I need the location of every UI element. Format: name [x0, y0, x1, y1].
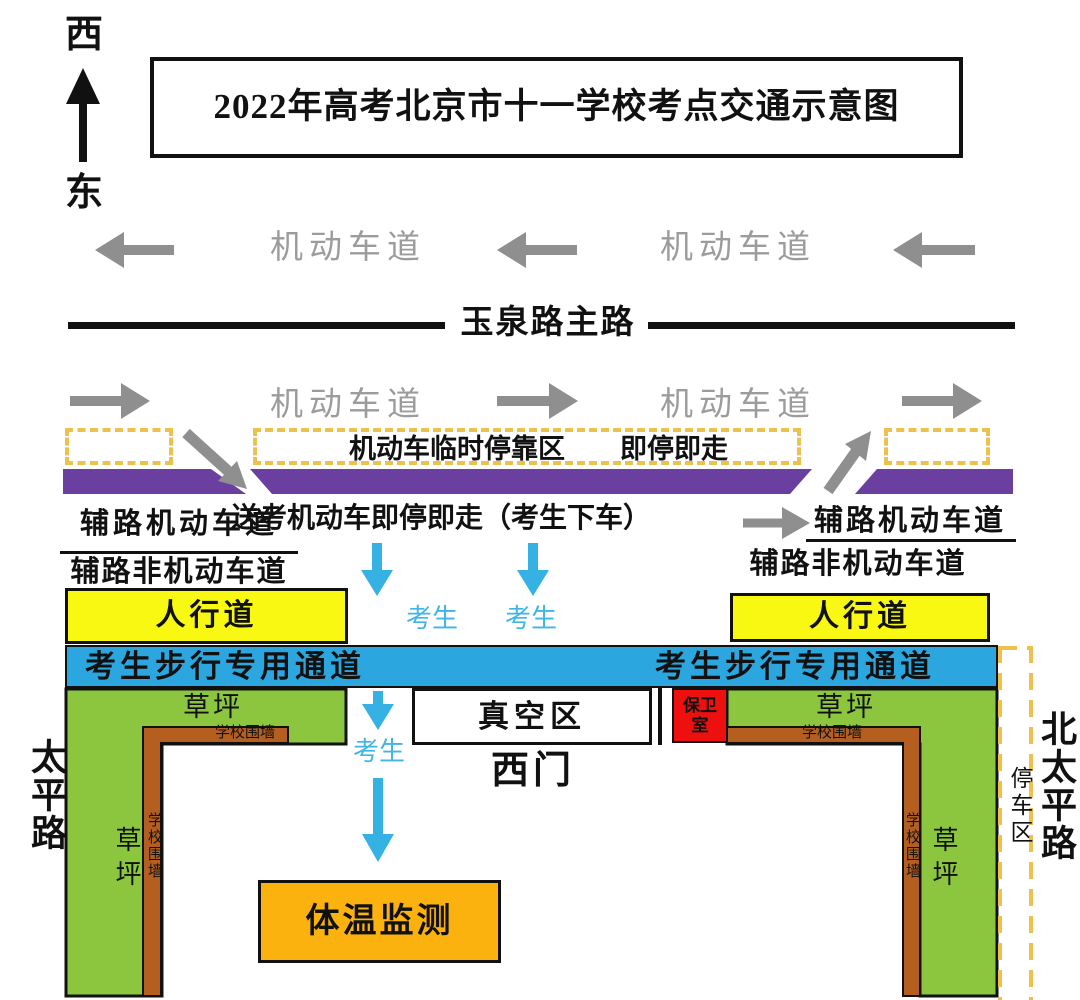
- service-motor-lane-right: 辅路机动车道: [804, 505, 1016, 538]
- eastbound-arrow-1: [70, 383, 150, 419]
- compass-west-label: 西: [56, 14, 112, 58]
- gate-divider-line: [658, 688, 662, 745]
- title-box: 2022年高考北京市十一学校考点交通示意图: [150, 57, 963, 158]
- service-road-divider-right: [806, 539, 1016, 542]
- student-arrow-4: [362, 778, 394, 862]
- westbound-arrow-1: [95, 232, 174, 268]
- vacuum-zone-label: 真空区: [478, 699, 586, 735]
- student-arrow-2: [517, 543, 549, 596]
- temp-stop-zone-middle: 机动车临时停靠区 即停即走: [253, 428, 801, 465]
- guard-room-box: 保卫 室: [672, 688, 728, 743]
- sidewalk-left-label: 人行道: [156, 599, 258, 634]
- sidewalk-right: 人行道: [730, 593, 990, 642]
- student-label-1: 考生: [400, 604, 464, 634]
- corridor-label-left: 考生步行专用通道: [85, 649, 365, 685]
- lawn-left-top-label: 草坪: [175, 692, 251, 723]
- stop-and-go-label: 即停即走: [620, 434, 728, 465]
- westbound-arrow-2: [497, 232, 577, 268]
- traffic-diagram: 西 东 2022年高考北京市十一学校考点交通示意图 机动车道 机动车道 玉泉路主…: [0, 0, 1080, 1000]
- service-road-bar-middle: [250, 469, 812, 494]
- compass-north-arrow: [66, 68, 100, 162]
- service-motor-lane-left: 辅路机动车道: [60, 508, 298, 541]
- wall-right-column-label: 学校围墙: [902, 812, 923, 880]
- service-road-arrow: [743, 507, 810, 539]
- wall-left-column-label: 学校围墙: [144, 812, 165, 880]
- main-road-line-left: [68, 322, 445, 329]
- sidewalk-left: 人行道: [65, 588, 348, 644]
- temp-stop-zone-left: [65, 428, 173, 465]
- street-left-label: 太平路: [20, 738, 72, 852]
- eastbound-arrow-2: [497, 383, 578, 419]
- guard-room-label-line1: 保卫: [683, 696, 717, 716]
- sidewalk-right-label: 人行道: [809, 600, 911, 635]
- temp-stop-label: 机动车临时停靠区: [349, 434, 565, 465]
- west-gate-label: 西门: [478, 750, 588, 794]
- eastbound-arrow-3: [902, 383, 982, 419]
- student-arrow-3: [362, 691, 394, 730]
- wall-right-top-label: 学校围墙: [786, 725, 878, 742]
- westbound-lane-label-1: 机动车道: [258, 230, 438, 268]
- eastbound-lane-label-1: 机动车道: [258, 387, 438, 425]
- compass-east-label: 东: [56, 172, 112, 216]
- school-wall-right-shape: [727, 727, 920, 996]
- guard-room-label-line2: 室: [692, 716, 709, 736]
- service-nonmotor-lane-right: 辅路非机动车道: [740, 548, 976, 581]
- student-corridor-bar: 考生步行专用通道 考生步行专用通道: [65, 645, 998, 688]
- student-label-2: 考生: [499, 604, 563, 634]
- corridor-label-right: 考生步行专用通道: [655, 649, 935, 685]
- service-road-divider-left: [60, 551, 298, 554]
- westbound-lane-label-2: 机动车道: [648, 230, 828, 268]
- page-title: 2022年高考北京市十一学校考点交通示意图: [213, 87, 899, 127]
- service-road-bar-right: [855, 469, 1013, 494]
- service-road-bar-left: [63, 469, 246, 494]
- street-right-label: 北太平路: [1030, 710, 1080, 862]
- eastbound-lane-label-2: 机动车道: [648, 387, 828, 425]
- westbound-arrow-3: [893, 232, 975, 268]
- service-nonmotor-lane-left: 辅路非机动车道: [53, 556, 305, 589]
- student-arrow-1: [361, 543, 393, 596]
- merge-out-arrow: [828, 431, 871, 491]
- lawn-right-column-label: 草坪: [925, 826, 962, 894]
- lawn-right-top-label: 草坪: [808, 692, 884, 723]
- temperature-check-box: 体温监测: [258, 880, 501, 963]
- vacuum-zone-box: 真空区: [412, 688, 652, 745]
- wall-left-top-label: 学校围墙: [199, 725, 291, 742]
- main-road-line-right: [648, 322, 1015, 329]
- temperature-check-label: 体温监测: [306, 902, 454, 941]
- student-label-3: 考生: [348, 737, 410, 767]
- lawn-left-column-label: 草坪: [108, 826, 145, 894]
- main-road-name: 玉泉路主路: [448, 305, 648, 343]
- temp-stop-zone-right: [884, 428, 990, 465]
